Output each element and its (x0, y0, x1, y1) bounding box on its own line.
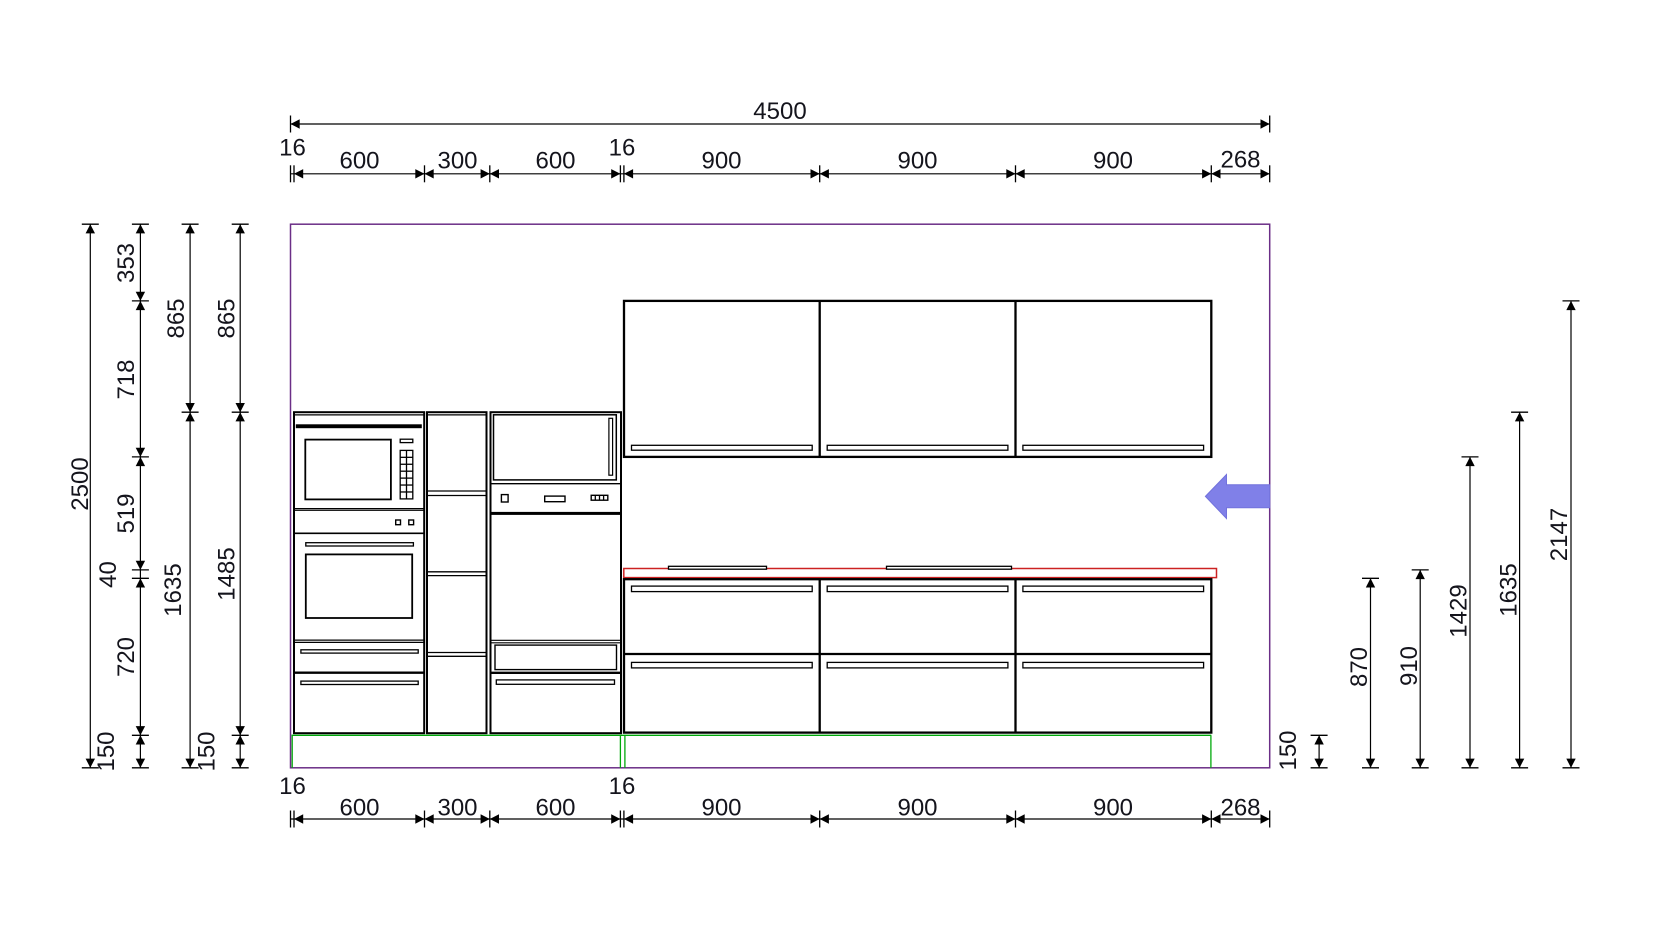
svg-text:16: 16 (609, 135, 636, 162)
svg-text:4500: 4500 (753, 98, 806, 125)
svg-text:900: 900 (897, 148, 937, 175)
svg-text:1485: 1485 (214, 547, 241, 600)
svg-text:870: 870 (1346, 647, 1373, 687)
svg-text:865: 865 (214, 298, 241, 338)
svg-text:900: 900 (1093, 795, 1133, 822)
svg-text:353: 353 (113, 243, 140, 283)
svg-text:150: 150 (194, 731, 221, 771)
svg-text:910: 910 (1396, 646, 1423, 686)
svg-text:1635: 1635 (1496, 563, 1523, 616)
svg-text:900: 900 (701, 148, 741, 175)
svg-text:519: 519 (113, 493, 140, 533)
svg-text:150: 150 (1275, 730, 1302, 770)
svg-text:150: 150 (93, 731, 120, 771)
svg-text:300: 300 (437, 148, 477, 175)
svg-text:16: 16 (279, 135, 306, 162)
svg-text:268: 268 (1220, 147, 1260, 174)
svg-text:16: 16 (279, 773, 306, 800)
svg-text:300: 300 (437, 795, 477, 822)
svg-text:16: 16 (609, 773, 636, 800)
svg-text:600: 600 (535, 795, 575, 822)
svg-text:1635: 1635 (160, 563, 187, 616)
svg-text:2500: 2500 (67, 457, 94, 510)
svg-text:718: 718 (113, 359, 140, 399)
svg-text:900: 900 (897, 795, 937, 822)
svg-text:2147: 2147 (1546, 508, 1573, 561)
svg-text:600: 600 (339, 148, 379, 175)
svg-text:40: 40 (95, 561, 122, 588)
svg-text:720: 720 (113, 637, 140, 677)
svg-text:268: 268 (1220, 795, 1260, 822)
svg-text:900: 900 (701, 795, 741, 822)
svg-text:900: 900 (1093, 148, 1133, 175)
svg-text:1429: 1429 (1446, 584, 1473, 637)
svg-text:600: 600 (339, 795, 379, 822)
svg-text:865: 865 (163, 298, 190, 338)
svg-text:600: 600 (535, 148, 575, 175)
